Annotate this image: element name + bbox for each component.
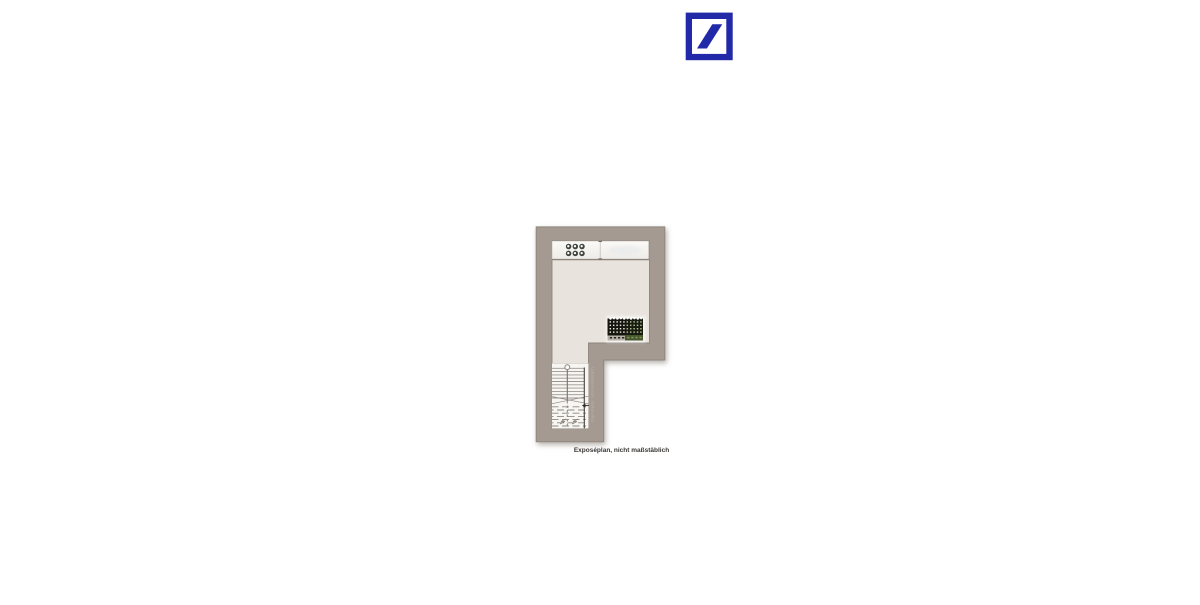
svg-text:Exposéplan, nicht maßstäblich: Exposéplan, nicht maßstäblich <box>590 367 595 421</box>
svg-text:Exposéplan, nicht maßstäblich: Exposéplan, nicht maßstäblich <box>574 447 669 454</box>
